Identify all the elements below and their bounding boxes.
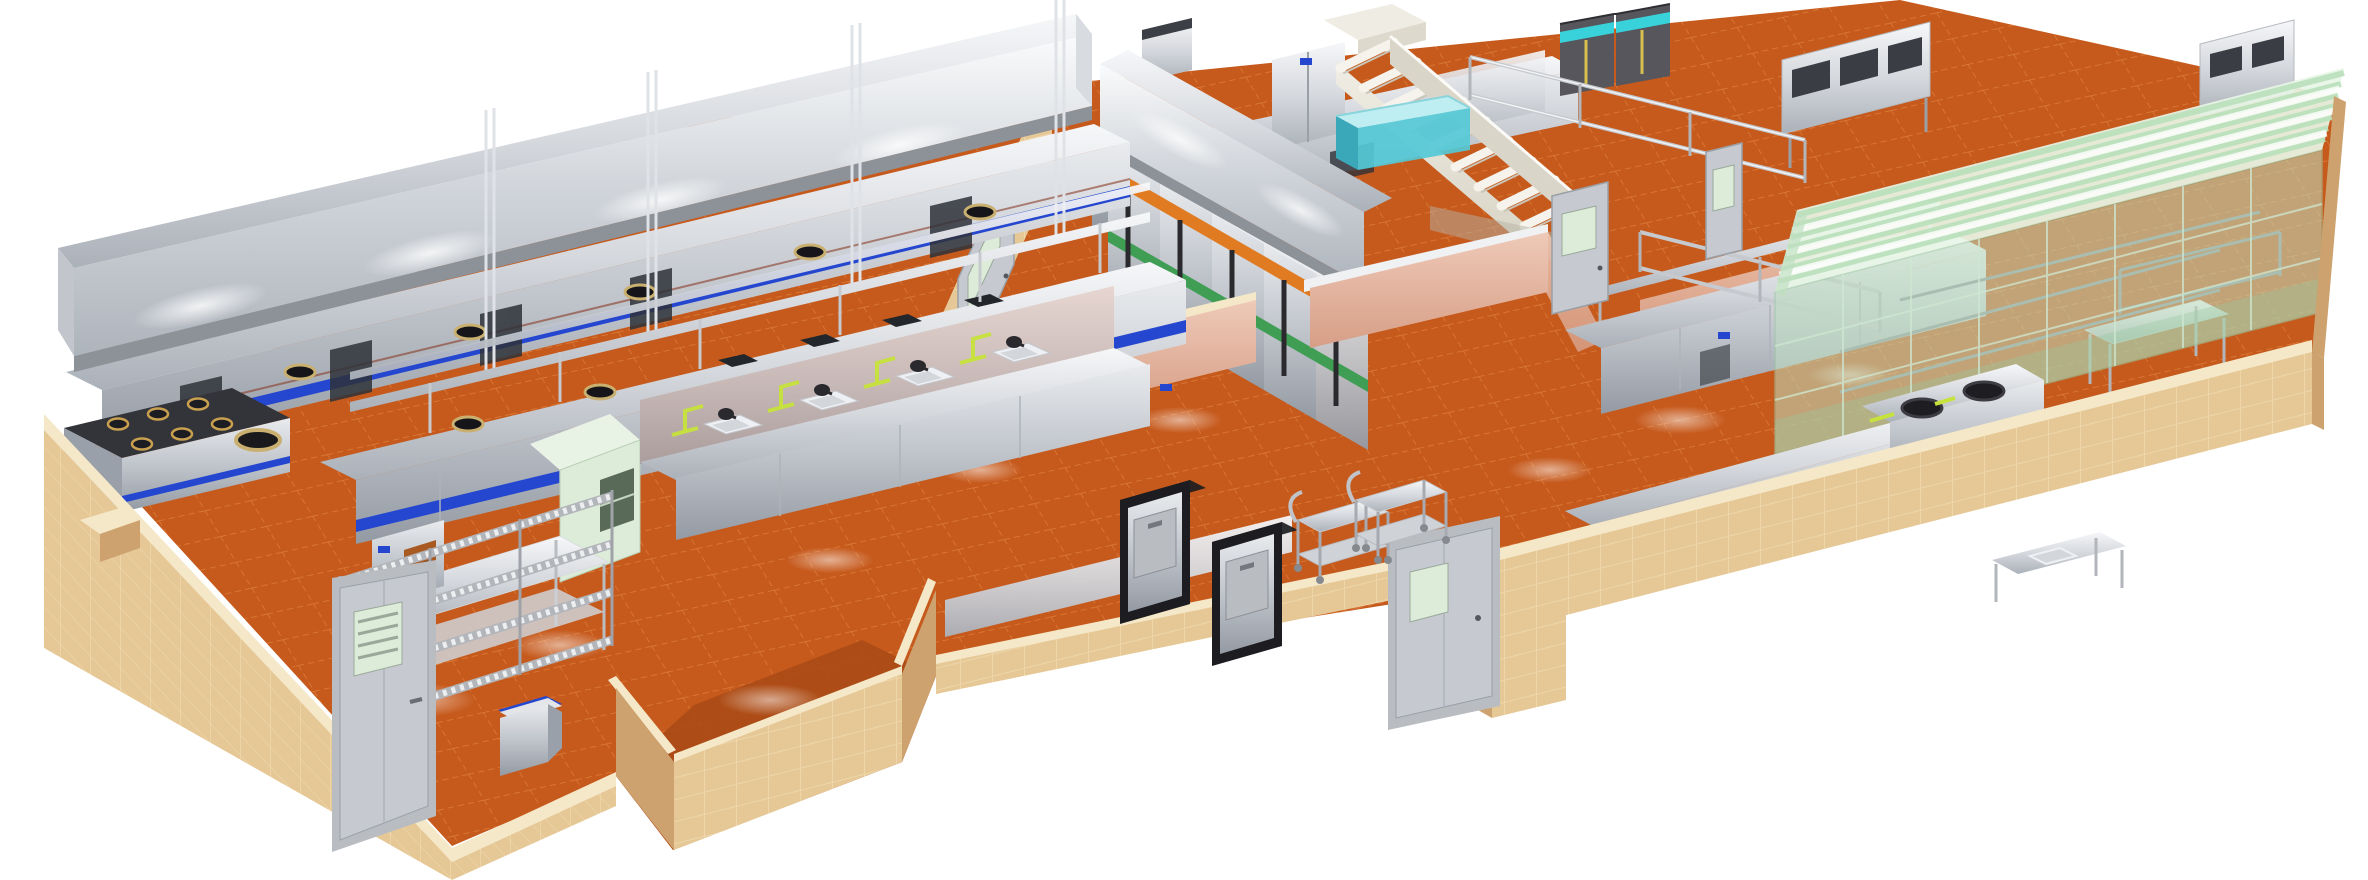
door-pass-right bbox=[1706, 143, 1742, 259]
large-wok-ring bbox=[236, 430, 280, 450]
door-bottom-left bbox=[332, 560, 436, 852]
door-pass-left bbox=[1552, 182, 1608, 314]
kitchen-3d-render: 3D rendered commercial kitchen floor pla… bbox=[0, 0, 2368, 880]
right-sink-table bbox=[1992, 532, 2126, 602]
kitchen-3d-render-canvas: 3D rendered commercial kitchen floor pla… bbox=[0, 0, 2368, 880]
door-bottom-center bbox=[1388, 516, 1500, 730]
